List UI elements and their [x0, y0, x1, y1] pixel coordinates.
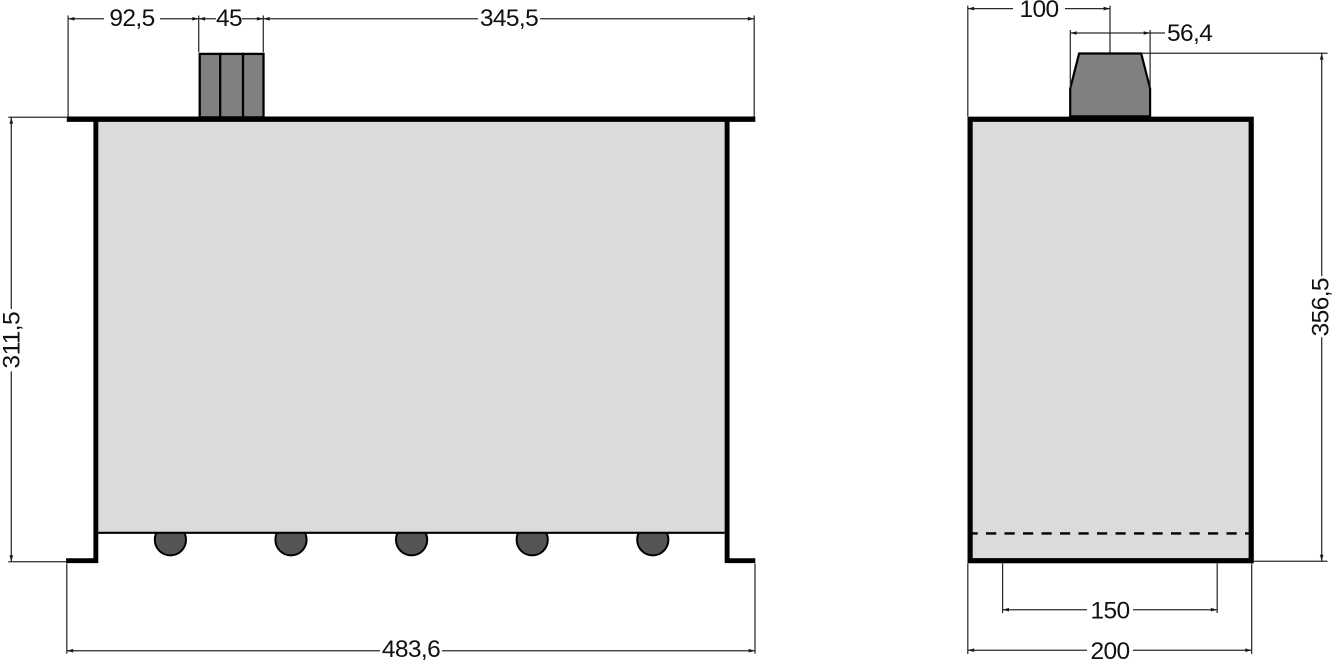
svg-text:100: 100 — [1019, 0, 1058, 23]
svg-text:92,5: 92,5 — [109, 5, 154, 32]
svg-text:45: 45 — [216, 5, 242, 32]
svg-text:150: 150 — [1090, 598, 1129, 625]
svg-text:483,6: 483,6 — [382, 636, 440, 662]
svg-text:200: 200 — [1090, 638, 1129, 662]
svg-text:311,5: 311,5 — [0, 312, 25, 369]
svg-text:56,4: 56,4 — [1167, 20, 1212, 47]
svg-text:345,5: 345,5 — [480, 5, 538, 32]
svg-text:356,5: 356,5 — [1307, 278, 1333, 336]
